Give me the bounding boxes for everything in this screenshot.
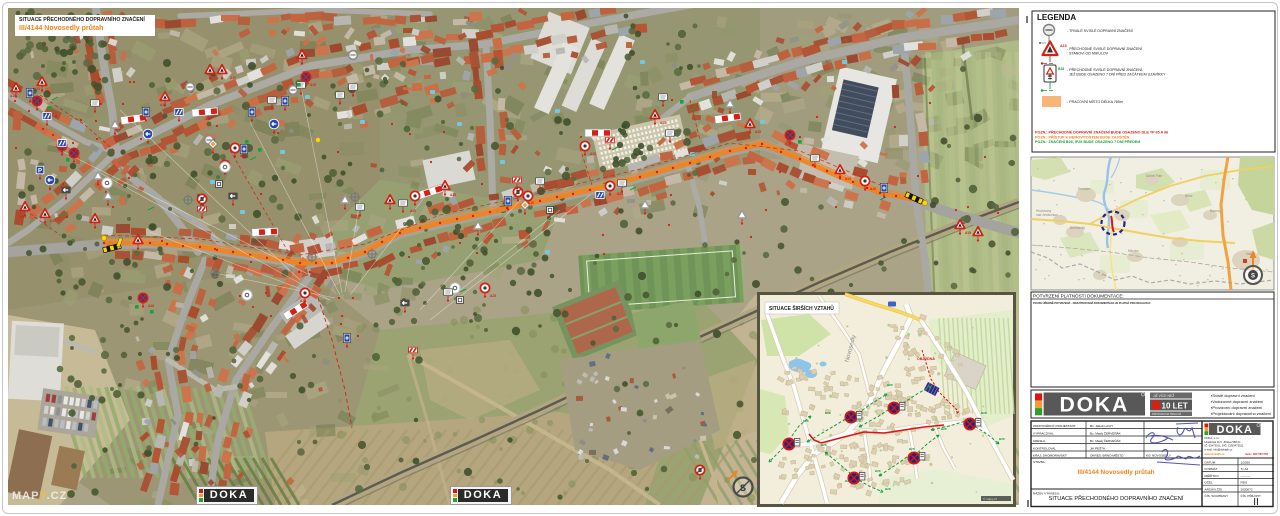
svg-text:A15: A15 (310, 83, 316, 87)
svg-text:www.dokajih.cz: www.dokajih.cz (1204, 452, 1226, 456)
svg-text:© mapy.cz: © mapy.cz (983, 497, 997, 501)
svg-text:ZODPOVĚDNÝ PROJEKTANT: ZODPOVĚDNÝ PROJEKTANT (1033, 423, 1076, 428)
svg-text:RDS: RDS (1241, 481, 1248, 485)
svg-text:Bc. Jakub LACH: Bc. Jakub LACH (1090, 424, 1113, 428)
svg-text:A15: A15 (160, 103, 166, 107)
svg-text:A15: A15 (10, 94, 16, 98)
svg-text:Drnholec: Drnholec (1078, 187, 1091, 191)
svg-text:DOKA, s.r.o.: DOKA, s.r.o. (1205, 436, 1220, 440)
svg-text:———: ——— (1241, 474, 1251, 478)
svg-text:KONTROLOVAL: KONTROLOVAL (1033, 447, 1056, 451)
svg-text:SITUACE ŠIRŠÍCH VZTAHŮ: SITUACE ŠIRŠÍCH VZTAHŮ (769, 304, 834, 312)
svg-text:A15: A15 (1060, 44, 1067, 48)
svg-text:A15: A15 (755, 130, 761, 134)
svg-text:mob.: 602 555 555: mob.: 602 555 555 (1245, 452, 1269, 456)
svg-text:ARCHIV.ČÍS.: ARCHIV.ČÍS. (1205, 487, 1223, 492)
svg-text:III/4144 Novosedly průtah: III/4144 Novosedly průtah (1077, 468, 1154, 476)
svg-text:DOKA: DOKA (1060, 393, 1130, 416)
svg-text:A15: A15 (660, 121, 666, 125)
svg-text:- PŘECHODNÉ SVISLÉ DOPRAVNÍ ZN: - PŘECHODNÉ SVISLÉ DOPRAVNÍ ZNAČENÍ (1067, 46, 1142, 51)
svg-text:STANOVÍ OD MIKULOV: STANOVÍ OD MIKULOV (1069, 52, 1109, 56)
svg-text:POZN.: PŘECHODNÉ DOPRAVNÍ ZNAČ: POZN.: PŘECHODNÉ DOPRAVNÍ ZNAČENÍ BUDE O… (1035, 130, 1168, 135)
svg-text:A15: A15 (450, 193, 456, 197)
svg-text:B28: B28 (1058, 67, 1064, 71)
svg-text:A15: A15 (845, 177, 851, 181)
svg-text:Mikulov: Mikulov (1128, 249, 1139, 253)
svg-text:nad Jevišovkou: nad Jevišovkou (1036, 213, 1058, 217)
svg-text:KRAJ: JIHOMORAVSKÝ: KRAJ: JIHOMORAVSKÝ (1033, 454, 1067, 458)
svg-text:A15: A15 (528, 201, 534, 205)
svg-text:e-mail: info@dokajih.cz: e-mail: info@dokajih.cz (1205, 447, 1233, 451)
svg-text:DOKA: DOKA (1217, 424, 1253, 436)
svg-text:ÚČEL: ÚČEL (1205, 480, 1214, 485)
svg-text:DATUM: DATUM (1205, 460, 1216, 464)
svg-text:B28: B28 (885, 487, 891, 491)
svg-text:B28: B28 (803, 419, 809, 423)
svg-text:LEGENDA: LEGENDA (1037, 13, 1076, 22)
svg-text:NÁZEV VÝKRESU:: NÁZEV VÝKRESU: (1033, 492, 1060, 496)
svg-text:Dobré Pole: Dobré Pole (1146, 174, 1162, 178)
svg-text:S: S (1251, 273, 1255, 279)
svg-text:A15: A15 (205, 117, 211, 121)
svg-text:A15: A15 (590, 152, 596, 156)
svg-text:Jiří PEŠTA: Jiří PEŠTA (1090, 446, 1106, 451)
svg-text:SITUACE PŘECHODNÉHO DOPRAVNÍ: SITUACE PŘECHODNÉHO DOPRAVNÍHO ZNAČENÍ (1049, 494, 1184, 502)
svg-text:A15: A15 (230, 76, 236, 80)
svg-text:FORMÁT: FORMÁT (1205, 467, 1218, 471)
svg-text:JIŽ VÍCE NEŽ: JIŽ VÍCE NEŽ (1153, 393, 1174, 398)
svg-text:A15: A15 (410, 209, 416, 213)
svg-text:- TRVALÉ SVISLÉ DOPRAVNÍ ZNAČE: - TRVALÉ SVISLÉ DOPRAVNÍ ZNAČENÍ (1067, 28, 1133, 33)
svg-text:- PŘECHODNÉ SVISLÉ DOPRAVNÍ ZN: - PŘECHODNÉ SVISLÉ DOPRAVNÍ ZNAČENÍ, (1067, 67, 1143, 72)
svg-text:- PRACOVNÍ MÍSTO DÉLKA 785m: - PRACOVNÍ MÍSTO DÉLKA 785m (1067, 99, 1123, 104)
svg-text:A15: A15 (300, 299, 306, 303)
svg-text:II: II (1253, 497, 1259, 508)
svg-text:B28: B28 (981, 411, 987, 415)
svg-text:Bc. Matěj ČERVEŇÁK: Bc. Matěj ČERVEŇÁK (1090, 431, 1122, 436)
svg-text:MĚŘÍTKO: MĚŘÍTKO (1205, 473, 1220, 478)
svg-text:A15: A15 (50, 219, 56, 223)
svg-text:▪Svislé dopravní značení: ▪Svislé dopravní značení (1211, 393, 1256, 398)
svg-text:1/2020: 1/2020 (1241, 460, 1251, 464)
svg-text:A15: A15 (965, 231, 971, 235)
svg-text:A15: A15 (20, 215, 26, 219)
svg-text:KRESLIL: KRESLIL (1033, 439, 1046, 443)
svg-text:OBJÍZDNÁ: OBJÍZDNÁ (917, 356, 935, 361)
svg-text:Bavory: Bavory (1210, 209, 1220, 213)
svg-text:POZN.: PŘÍSTUP K NEMOVITOSTEM: POZN.: PŘÍSTUP K NEMOVITOSTEM BUDE ZAJIŠ… (1035, 134, 1130, 139)
svg-text:OKRES: BRNO-MĚSTO: OKRES: BRNO-MĚSTO (1090, 453, 1124, 458)
svg-text:B28: B28 (999, 437, 1005, 441)
svg-text:JEŽ BUDE OSAZENO 7 DNÍ PŘED ZA: JEŽ BUDE OSAZENO 7 DNÍ PŘED ZAČÁTKEM UZA… (1069, 72, 1166, 77)
svg-text:B28: B28 (941, 427, 947, 431)
svg-text:B28: B28 (825, 411, 831, 415)
svg-text:VYPRACOVAL: VYPRACOVAL (1033, 432, 1054, 436)
svg-text:A15: A15 (870, 187, 876, 191)
svg-text:B28: B28 (887, 383, 893, 387)
svg-text:B28: B28 (909, 447, 915, 451)
svg-text:A15: A15 (240, 154, 246, 158)
svg-text:Březí: Březí (1185, 194, 1193, 198)
svg-text:7x A4: 7x A4 (1241, 467, 1249, 471)
svg-text:▪Projektování dopravního znače: ▪Projektování dopravního značení (1211, 411, 1272, 416)
svg-text:▪Vodorovné dopravní značení: ▪Vodorovné dopravní značení (1211, 399, 1264, 404)
svg-text:A15: A15 (617, 192, 623, 196)
svg-text:A15: A15 (490, 294, 496, 298)
svg-text:POTVRZENÍ PLATNOSTI DOKUMENTAC: POTVRZENÍ PLATNOSTI DOKUMENTACE: (1033, 292, 1124, 298)
svg-text:POZN.: ZNAČENÍ B28, IP25 BUDE: POZN.: ZNAČENÍ B28, IP25 BUDE OSAZENO 7 … (1035, 139, 1140, 144)
svg-text:STAVBA:: STAVBA: (1033, 460, 1046, 464)
svg-text:▪Provizorní dopravní značení: ▪Provizorní dopravní značení (1211, 405, 1263, 410)
svg-text:A15: A15 (34, 87, 40, 91)
svg-text:A15: A15 (148, 304, 154, 308)
svg-text:B28: B28 (875, 469, 881, 473)
svg-text:PROVOZU NA TRHU DZ: PROVOZU NA TRHU DZ (1152, 412, 1181, 416)
svg-text:2020072: 2020072 (1241, 488, 1253, 492)
svg-text:10 LET: 10 LET (1162, 402, 1188, 411)
svg-text:Hradecká 11/3, Jihlava 586 01: Hradecká 11/3, Jihlava 586 01 (1205, 440, 1242, 444)
svg-text:Novosedly: Novosedly (1070, 226, 1085, 230)
svg-text:S: S (740, 483, 746, 493)
svg-text:ČÍS. SOUPRAVY: ČÍS. SOUPRAVY (1205, 493, 1229, 498)
svg-text:B28: B28 (821, 443, 827, 447)
svg-text:Bc. Matěj ČERVEŇÁK: Bc. Matěj ČERVEŇÁK (1090, 438, 1122, 443)
